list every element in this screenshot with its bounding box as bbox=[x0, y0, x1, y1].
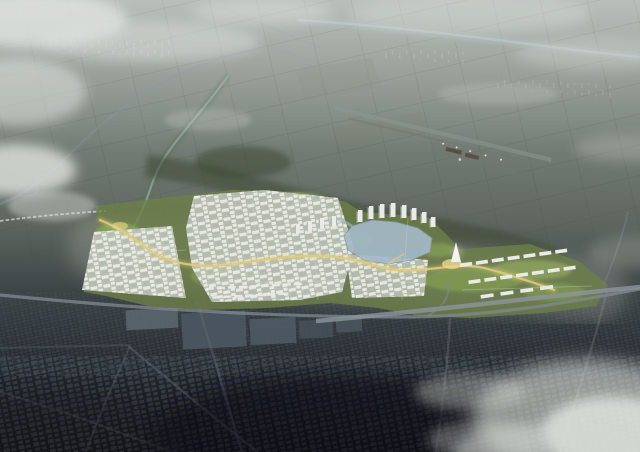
row-building bbox=[250, 285, 258, 288]
tower bbox=[422, 212, 427, 223]
tower-shade bbox=[319, 220, 320, 229]
row-building bbox=[256, 294, 264, 297]
tower bbox=[358, 210, 363, 222]
masterplan-aerial-rendering bbox=[0, 0, 640, 452]
cloud-wisp bbox=[415, 374, 525, 410]
tower-shade bbox=[295, 226, 296, 234]
tower-shade bbox=[411, 210, 412, 221]
row-building bbox=[267, 293, 275, 296]
row-building bbox=[206, 287, 214, 290]
row-building bbox=[212, 296, 220, 299]
forest-blob bbox=[195, 146, 291, 178]
row-building bbox=[228, 286, 236, 289]
row-building bbox=[261, 284, 269, 287]
tower-shade bbox=[379, 206, 380, 219]
tower bbox=[320, 218, 324, 228]
lit-plaza bbox=[112, 222, 128, 230]
industrial-roof bbox=[249, 317, 296, 345]
tower bbox=[380, 204, 385, 218]
tower bbox=[391, 203, 396, 217]
tower-shade bbox=[331, 218, 332, 227]
tower bbox=[402, 205, 407, 218]
industrial-roof bbox=[181, 310, 247, 349]
tower bbox=[296, 224, 300, 233]
tower bbox=[412, 208, 417, 220]
row-building bbox=[223, 295, 231, 298]
industrial-roof bbox=[126, 308, 179, 331]
row-building bbox=[217, 287, 225, 290]
row-building bbox=[239, 285, 247, 288]
row-building bbox=[278, 292, 286, 295]
aerial-render-stage bbox=[0, 0, 640, 452]
tower-shade bbox=[421, 214, 422, 224]
row-building bbox=[245, 294, 253, 297]
tower-shade bbox=[368, 208, 369, 220]
tower-shade bbox=[390, 205, 391, 218]
tower-shade bbox=[430, 219, 431, 228]
central-district bbox=[186, 190, 354, 302]
tower-shade bbox=[401, 207, 402, 219]
tower bbox=[431, 217, 436, 227]
tower-shade bbox=[357, 212, 358, 223]
top-haze-veil bbox=[0, 0, 640, 150]
row-building bbox=[272, 284, 280, 287]
cloud bbox=[8, 191, 96, 221]
landmark-glow bbox=[451, 246, 463, 258]
tower bbox=[332, 216, 336, 226]
row-building bbox=[294, 283, 302, 286]
row-building bbox=[283, 283, 291, 286]
row-building bbox=[234, 295, 242, 298]
tower bbox=[369, 206, 374, 219]
